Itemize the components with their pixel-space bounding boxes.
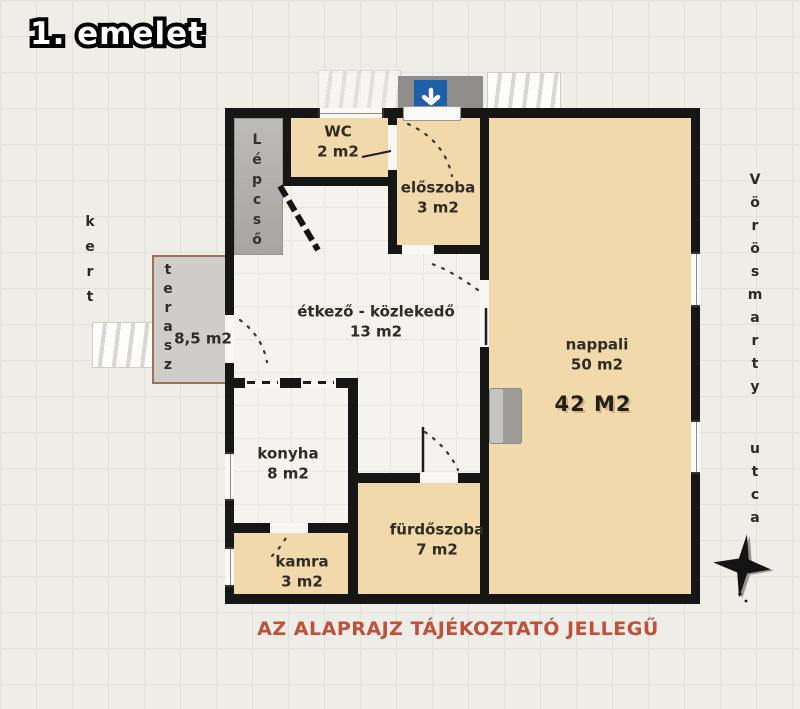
garden-steps	[92, 322, 154, 368]
wall-segment	[388, 170, 397, 247]
wall-segment	[308, 523, 348, 533]
wall-segment	[480, 108, 489, 280]
room-label-pantry: kamra 3 m2	[275, 553, 328, 592]
room-name: fürdőszoba	[390, 521, 484, 539]
room-area-alt-living: 42 M2	[554, 392, 631, 416]
wall-segment	[388, 118, 397, 125]
room-name: előszoba	[401, 179, 475, 197]
room-name: kamra	[275, 553, 328, 571]
door-opening-dashed	[301, 378, 336, 388]
door-opening-dashed	[245, 378, 280, 388]
room-area: 7 m2	[390, 540, 484, 560]
entrance-door-opening	[403, 106, 461, 121]
room-label-staircase: Lépcső	[249, 132, 265, 252]
wall-segment	[225, 363, 234, 452]
door-opening-pantry	[270, 523, 308, 533]
wall-segment	[225, 594, 700, 604]
wall-segment	[283, 177, 397, 186]
room-label-hall: előszoba 3 m2	[401, 179, 475, 218]
street-label: Vörösmarty utca	[747, 172, 763, 533]
wall-segment	[691, 470, 700, 604]
door-opening-bathroom	[420, 473, 458, 483]
door-opening-wc	[388, 125, 397, 170]
wall-segment	[348, 378, 358, 604]
wall-segment	[283, 118, 291, 186]
room-name: nappali	[566, 336, 629, 354]
wall-segment	[280, 378, 301, 388]
top-left-steps	[318, 70, 402, 110]
window	[318, 108, 384, 118]
room-area: 3 m2	[275, 572, 328, 592]
room-area-terrace: 8,5 m2	[174, 329, 232, 349]
wall-segment	[225, 378, 245, 388]
wall-segment	[225, 523, 270, 533]
room-area: 3 m2	[401, 198, 475, 218]
window	[691, 252, 700, 307]
room-label-kitchen: konyha 8 m2	[257, 445, 318, 484]
room-name: WC	[324, 123, 352, 141]
window	[225, 547, 234, 587]
room-area: 2 m2	[317, 142, 359, 162]
room-area: 50 m2	[566, 355, 629, 375]
room-name: étkező - közlekedő	[297, 303, 455, 321]
page-title: 1. emelet	[30, 16, 204, 52]
fireplace	[489, 388, 522, 444]
door-opening-hall	[402, 245, 434, 254]
wall-segment	[358, 473, 420, 483]
wall-segment	[225, 108, 234, 315]
window	[691, 420, 700, 474]
room-label-terrace: terasz	[160, 262, 176, 376]
room-label-wc: WC 2 m2	[317, 123, 359, 162]
disclaimer-text: AZ ALAPRAJZ TÁJÉKOZTATÓ JELLEGŰ	[228, 618, 688, 640]
room-area: 8 m2	[257, 464, 318, 484]
wall-segment	[225, 497, 234, 547]
wall-segment	[691, 303, 700, 420]
wall-segment	[388, 245, 402, 254]
room-area: 13 m2	[297, 322, 455, 342]
room-label-bathroom: fürdőszoba 7 m2	[390, 521, 484, 560]
wall-segment	[458, 473, 480, 483]
room-label-dining: étkező - közlekedő 13 m2	[297, 303, 455, 342]
door-opening-living	[480, 280, 489, 347]
garden-label: kert	[82, 214, 98, 314]
room-name: konyha	[257, 445, 318, 463]
room-label-living: nappali 50 m2	[566, 336, 629, 375]
wall-segment	[457, 108, 700, 118]
wall-segment	[691, 108, 700, 252]
window	[225, 452, 234, 501]
